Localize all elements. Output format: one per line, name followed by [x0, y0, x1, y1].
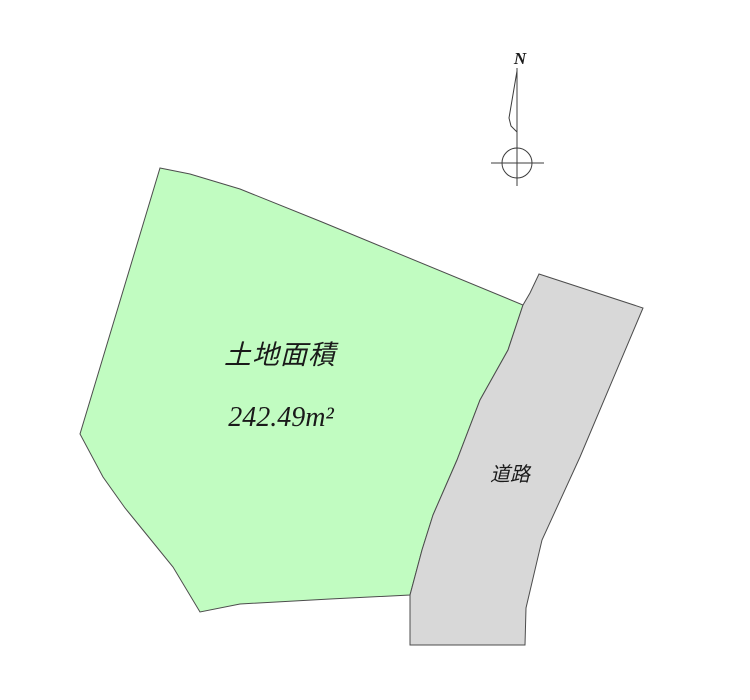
site-plan-drawing: N 土地面積 242.49m² 道路 — [0, 0, 750, 700]
compass-arrow-blade — [509, 71, 517, 132]
parcel-area-value: 242.49m² — [228, 402, 334, 433]
site-plan-canvas: N 土地面積 242.49m² 道路 — [0, 0, 750, 700]
north-compass-icon: N — [491, 49, 544, 186]
north-label: N — [513, 49, 527, 68]
parcel-area-title: 土地面積 — [224, 340, 339, 370]
road-label: 道路 — [490, 464, 532, 486]
